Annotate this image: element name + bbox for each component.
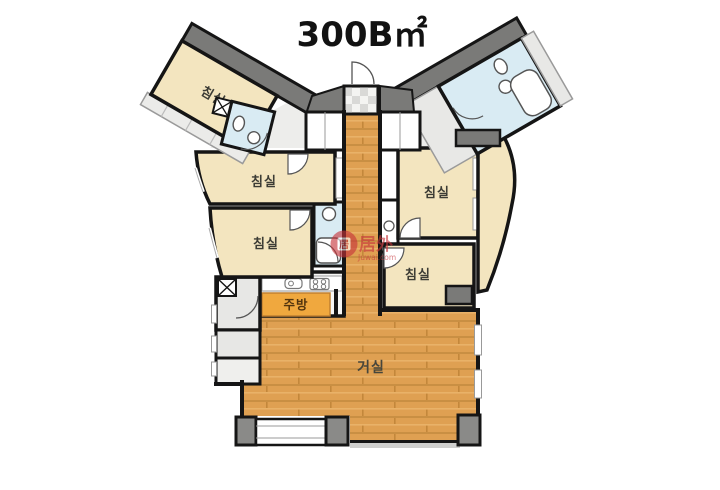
storage-room-1 <box>216 330 260 358</box>
window <box>212 305 217 323</box>
sink-icon <box>384 221 394 231</box>
window <box>212 362 217 376</box>
entry-foyer <box>344 86 378 114</box>
sink-icon <box>285 279 302 289</box>
pillar <box>326 417 348 445</box>
pillar <box>458 415 480 445</box>
sink-icon <box>323 208 336 221</box>
pillar <box>446 286 472 304</box>
utility-rooms <box>212 277 261 384</box>
storage-room-2 <box>216 358 260 384</box>
pillar <box>456 130 500 146</box>
bedroom-right-lower-label: 침실 <box>405 267 431 283</box>
window <box>475 370 482 398</box>
bay-window <box>256 419 326 445</box>
bedroom-right-upper-label: 침실 <box>424 185 450 201</box>
hallway-floor <box>344 114 380 314</box>
watermark-brand: 居外 <box>359 234 393 255</box>
entry-wall-right <box>380 86 414 112</box>
pillar <box>236 417 256 445</box>
closet <box>380 150 398 200</box>
window <box>212 336 217 352</box>
page-title: 300B㎡ <box>297 15 428 55</box>
floor-plan-image: 침실 <box>0 0 720 490</box>
window <box>475 325 482 355</box>
floor-plan-svg: 침실 <box>0 0 720 490</box>
closet-icon <box>218 279 236 296</box>
bathroom-left-floor <box>221 101 274 154</box>
watermark-domain: Juwai.com <box>357 253 396 262</box>
watermark-logo-char: 居 <box>339 239 349 251</box>
bedroom-left-upper-label: 침실 <box>251 174 277 190</box>
window-sill <box>348 443 460 448</box>
living-room-label: 거실 <box>357 360 385 376</box>
kitchen-label: 주방 <box>283 297 308 312</box>
bedroom-left-lower-label: 침실 <box>253 236 279 252</box>
